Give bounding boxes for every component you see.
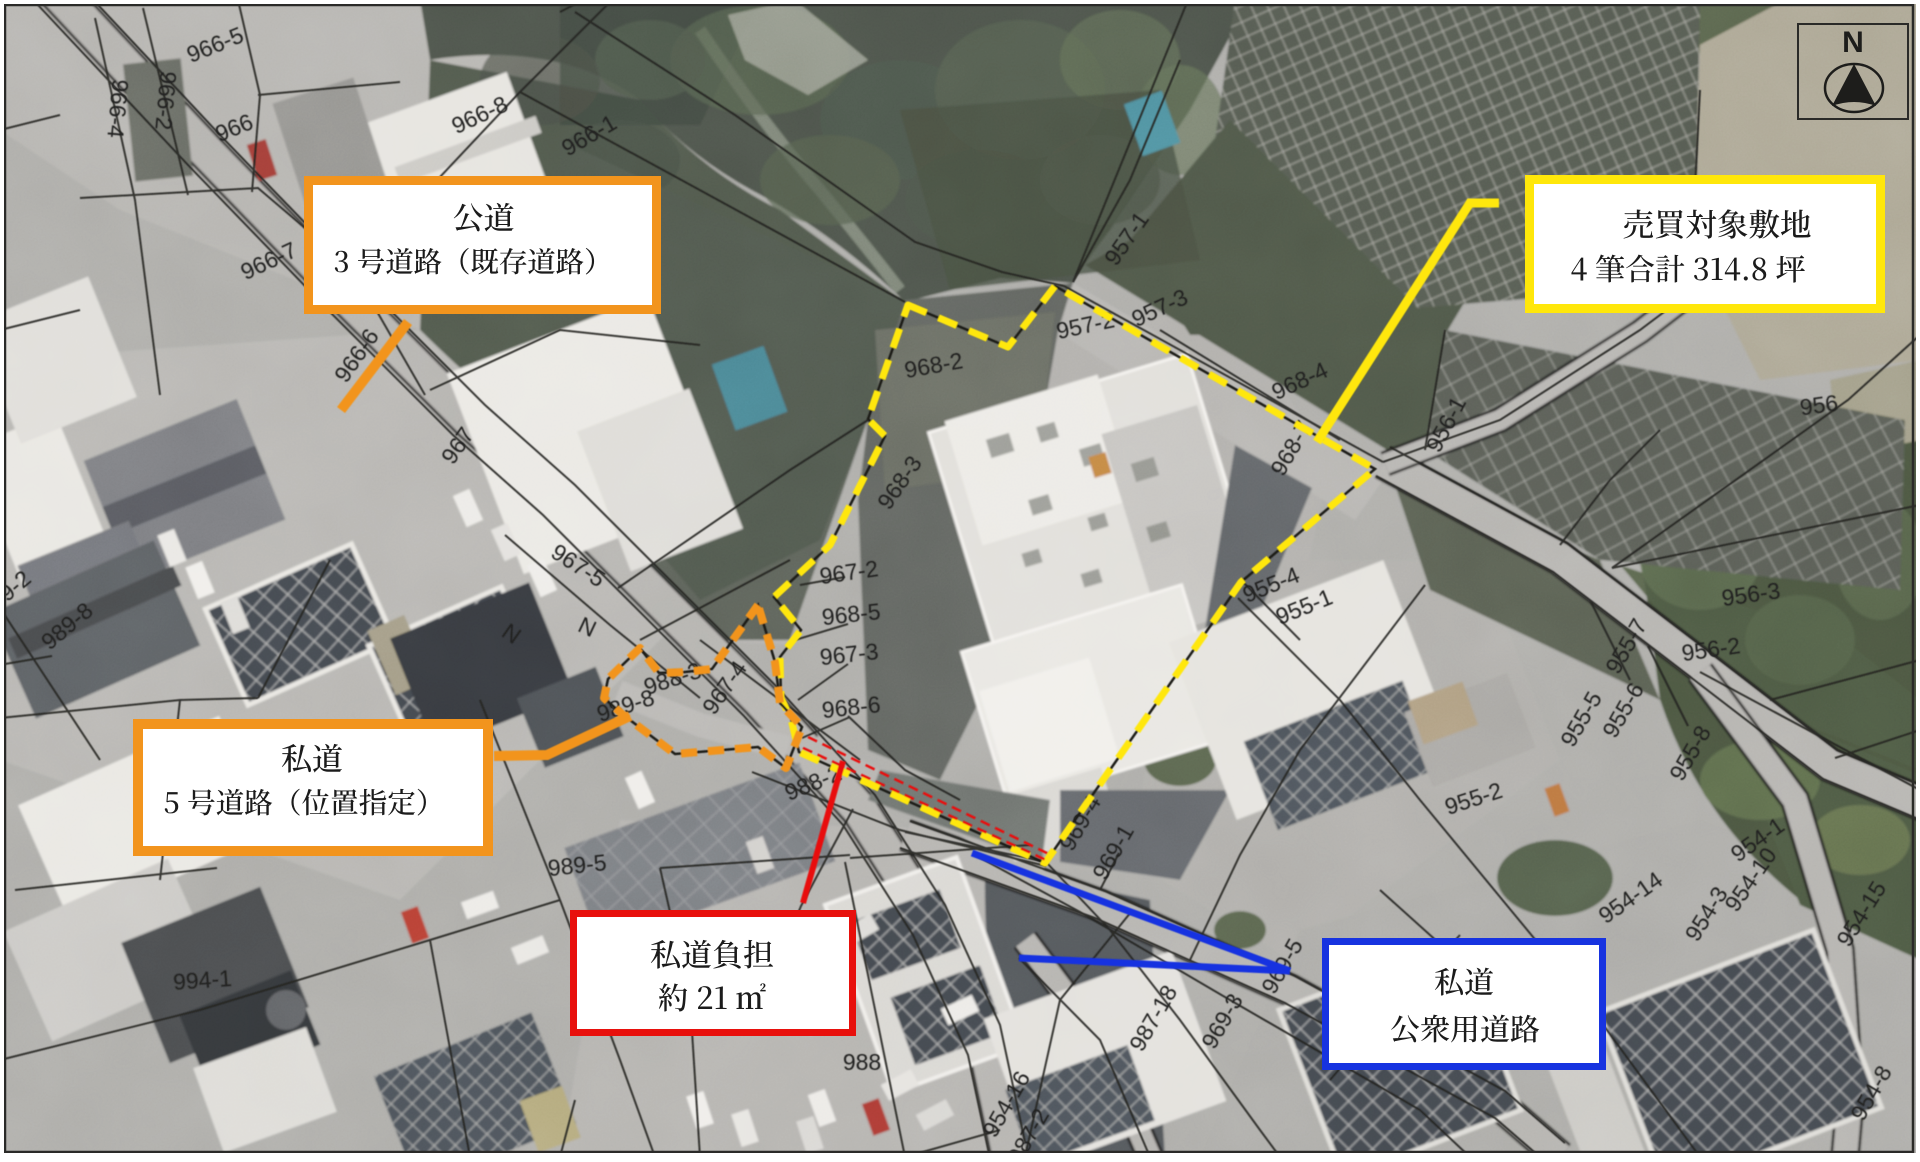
svg-text:N: N bbox=[1842, 26, 1864, 59]
svg-text:966-2: 966-2 bbox=[150, 70, 181, 131]
svg-text:994-1: 994-1 bbox=[172, 965, 232, 995]
svg-text:956: 956 bbox=[1798, 390, 1840, 421]
svg-text:966-4: 966-4 bbox=[102, 78, 133, 139]
svg-text:988: 988 bbox=[843, 1049, 881, 1075]
